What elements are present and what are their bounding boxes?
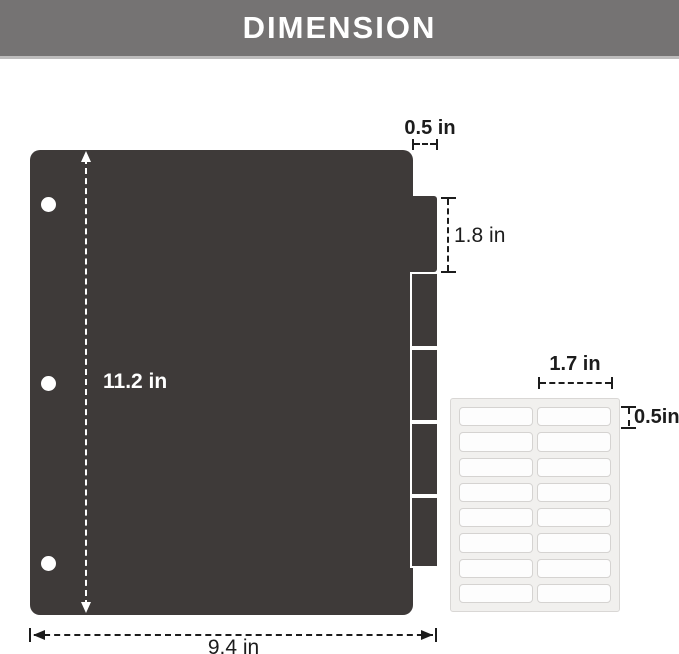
label-cell — [537, 508, 611, 527]
label-height-label: 0.5in — [634, 406, 679, 429]
page-title: DIMENSION — [243, 10, 437, 46]
divider-sheet — [30, 150, 413, 615]
label-cell — [537, 584, 611, 603]
label-cell — [537, 458, 611, 477]
punch-hole-top — [41, 197, 56, 212]
label-cell — [537, 533, 611, 552]
down-arrowhead-icon — [81, 602, 91, 613]
tab-height-label: 1.8 in — [454, 224, 505, 248]
label-cell — [459, 483, 533, 502]
tab-height-measure-line — [447, 199, 449, 271]
tab-width-label: 0.5 in — [398, 117, 462, 140]
label-cell — [459, 407, 533, 426]
dimension-diagram: DIMENSION 11.2 in 9.4 in 0.5 in 1.8 in 1… — [0, 0, 679, 654]
divider-tab-2 — [410, 272, 437, 348]
sheet-height-measure-line — [85, 158, 87, 606]
label-cell — [537, 559, 611, 578]
tab-width-measure-line — [414, 143, 436, 145]
label-height-measure-line — [628, 408, 630, 426]
label-cell — [459, 458, 533, 477]
divider-tab-1 — [412, 196, 437, 272]
sheet-height-label: 11.2 in — [103, 370, 167, 394]
punch-hole-bottom — [41, 556, 56, 571]
measure-tick — [441, 271, 456, 273]
label-sheet — [450, 398, 620, 612]
sheet-width-label: 9.4 in — [30, 636, 437, 654]
up-arrowhead-icon — [81, 151, 91, 162]
header-bar: DIMENSION — [0, 0, 679, 59]
label-cell — [459, 432, 533, 451]
label-width-label: 1.7 in — [533, 353, 617, 376]
punch-hole-middle — [41, 376, 56, 391]
measure-tick — [611, 377, 613, 389]
label-cell — [537, 407, 611, 426]
divider-tab-3 — [410, 348, 437, 422]
label-cell — [537, 483, 611, 502]
measure-tick — [436, 139, 438, 150]
label-cell — [459, 508, 533, 527]
label-width-measure-line — [540, 382, 611, 384]
label-cell — [459, 584, 533, 603]
divider-tab-4 — [410, 422, 437, 496]
divider-tab-5 — [410, 496, 437, 568]
label-cell — [459, 533, 533, 552]
label-cell — [459, 559, 533, 578]
label-cell — [537, 432, 611, 451]
